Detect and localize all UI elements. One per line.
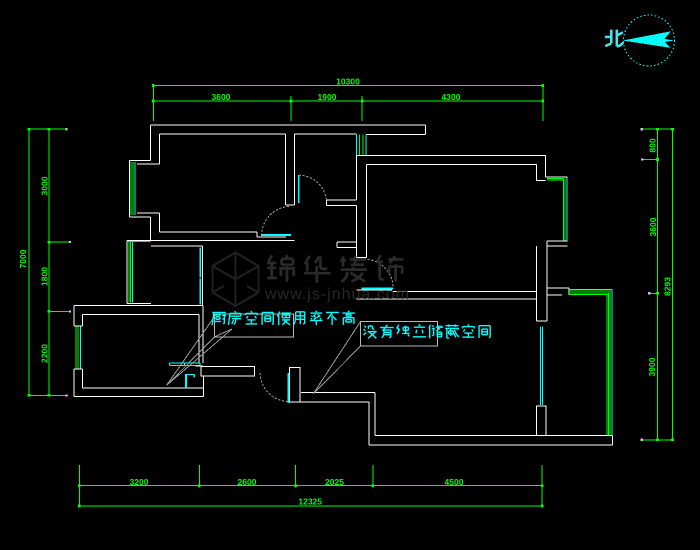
svg-text:7000: 7000 xyxy=(18,249,28,268)
svg-text:1800: 1800 xyxy=(39,267,49,286)
svg-text:10300: 10300 xyxy=(336,77,360,87)
svg-text:3600: 3600 xyxy=(212,92,231,102)
svg-text:4500: 4500 xyxy=(445,477,464,487)
svg-text:3900: 3900 xyxy=(647,357,657,376)
svg-text:2025: 2025 xyxy=(325,477,344,487)
svg-text:3200: 3200 xyxy=(130,477,149,487)
svg-text:2200: 2200 xyxy=(39,344,49,363)
svg-text:800: 800 xyxy=(647,138,657,152)
svg-text:www.js-jnhua.com: www.js-jnhua.com xyxy=(264,286,410,303)
svg-text:2600: 2600 xyxy=(238,477,257,487)
svg-text:1900: 1900 xyxy=(318,92,337,102)
svg-text:4300: 4300 xyxy=(442,92,461,102)
svg-text:3600: 3600 xyxy=(648,217,658,236)
svg-text:12325: 12325 xyxy=(298,497,322,507)
svg-text:3000: 3000 xyxy=(39,176,49,195)
svg-text:8293: 8293 xyxy=(663,277,673,296)
